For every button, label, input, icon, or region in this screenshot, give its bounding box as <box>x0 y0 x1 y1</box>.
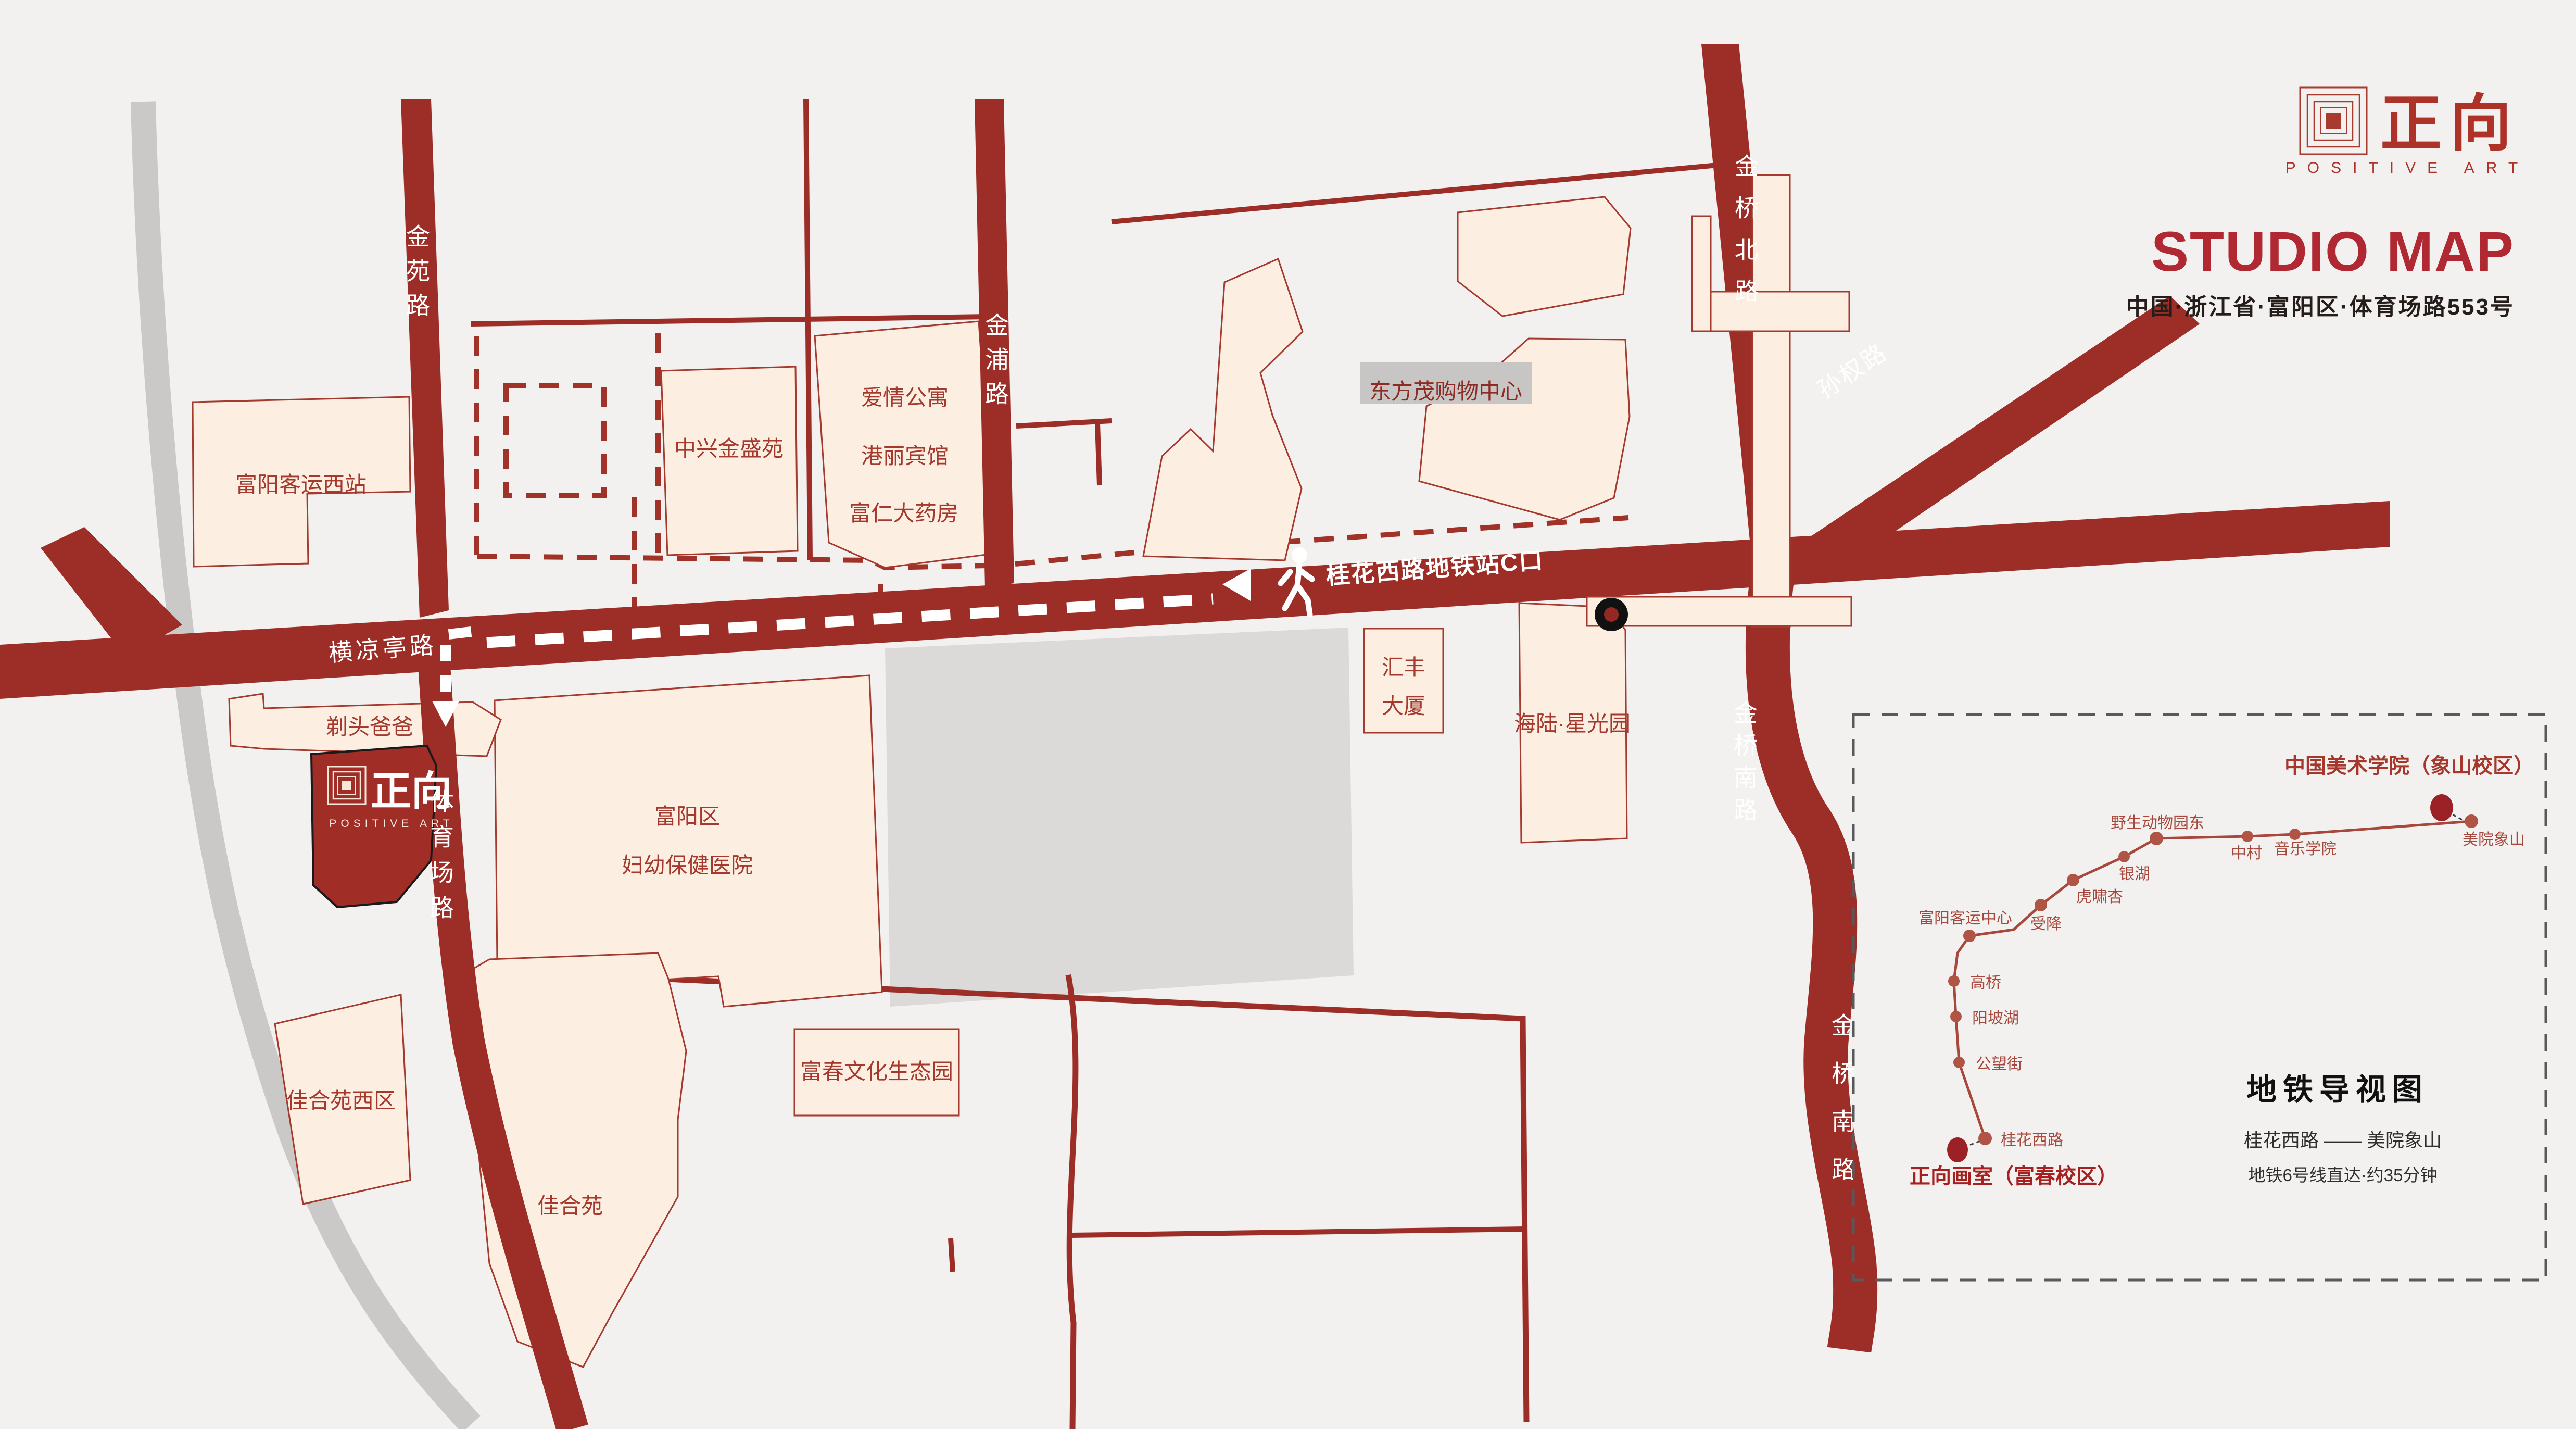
gray-block <box>885 628 1354 1007</box>
label-hailu: 海陆·星光园 <box>1514 711 1631 736</box>
label-road-sunquan: 孙权路 <box>1812 338 1892 404</box>
station-dot <box>1950 1011 1962 1022</box>
metro-origin: 正向画室（富春校区） <box>1910 1165 2118 1188</box>
station-label: 桂花西路 <box>2001 1132 2063 1149</box>
station-dot <box>1948 975 1960 987</box>
label-furen: 富仁大药房 <box>849 501 958 525</box>
metro-note: 地铁6号线直达·约35分钟 <box>2248 1165 2437 1185</box>
station-dot <box>2242 831 2253 842</box>
station-label: 高桥 <box>1970 974 2001 992</box>
label-road-jinpu: 金浦路 <box>982 312 1009 416</box>
station-dot <box>2465 814 2478 828</box>
station-dot <box>1963 930 1976 942</box>
station-dot <box>2150 832 2163 845</box>
label-road-jinqiao-south-upper: 金桥南路 <box>1731 700 1758 830</box>
station-dot <box>1978 1132 1992 1145</box>
destination-terminal-dot <box>2430 794 2453 821</box>
label-road-jinqiao-south: 金桥南路 <box>1828 1013 1855 1205</box>
label-fuyou-line2: 妇幼保健医院 <box>622 853 753 878</box>
building-zhongxing <box>661 367 798 555</box>
station-dot <box>1953 1057 1965 1068</box>
label-dongfangmao: 东方茂购物中心 <box>1369 379 1522 404</box>
station-label: 美院象山 <box>2463 831 2525 848</box>
studio-map-page: 正向 POSITIVE ART 富阳客运西站 中兴金盛苑 爱情公寓 港丽宾馆 富… <box>0 0 2576 1429</box>
station-label: 银湖 <box>2119 866 2150 883</box>
station-label: 虎啸杏 <box>2076 888 2123 906</box>
header: 正向 POSITIVE ART STUDIO MAP 中国·浙江省·富阳区·体育… <box>2126 87 2530 320</box>
label-gangli: 港丽宾馆 <box>861 444 949 468</box>
label-fuchun-park: 富春文化生态园 <box>800 1059 953 1084</box>
page-address: 中国·浙江省·富阳区·体育场路553号 <box>2126 294 2515 320</box>
label-jiaheyuan-west: 佳合苑西区 <box>286 1088 396 1113</box>
station-label: 阳坡湖 <box>1972 1010 2019 1027</box>
station-label: 野生动物园东 <box>2111 814 2204 832</box>
station-dot <box>2289 829 2301 840</box>
page-title: STUDIO MAP <box>2151 220 2515 283</box>
station-dot <box>2067 874 2079 886</box>
label-aiqing: 爱情公寓 <box>861 385 949 410</box>
building-dongfangmao-north <box>1458 197 1631 316</box>
label-fuyang-west: 富阳客运西站 <box>235 472 367 497</box>
station-label: 受降 <box>2030 916 2062 933</box>
label-jiaheyuan: 佳合苑 <box>537 1194 603 1218</box>
label-huifeng-line1: 汇丰 <box>1382 655 1425 680</box>
label-road-jinyuan: 金苑路 <box>403 224 430 327</box>
label-zhongxing: 中兴金盛苑 <box>674 436 784 461</box>
road-jinyuan <box>401 99 449 618</box>
label-fuyou-line1: 富阳区 <box>654 804 720 829</box>
station-dot <box>2118 851 2130 862</box>
building-dongfangmao-west <box>1143 259 1303 560</box>
metro-route: 桂花西路 —— 美院象山 <box>2244 1130 2442 1151</box>
label-road-tiyuchang: 体育场路 <box>427 789 454 931</box>
studio-logo-icon <box>328 767 365 804</box>
station-label: 音乐学院 <box>2274 841 2337 858</box>
route-dash-corner <box>449 632 471 634</box>
brand-name-en: POSITIVE ART <box>2285 159 2530 177</box>
label-titoubaba: 剃头爸爸 <box>326 714 413 739</box>
brand-name-cn: 正向 <box>2380 90 2520 158</box>
station-label: 中村 <box>2231 845 2262 862</box>
label-huifeng-line2: 大厦 <box>1382 694 1425 718</box>
label-road-jinqiao-north: 金桥北路 <box>1732 154 1759 320</box>
station-label: 富阳客运中心 <box>1918 910 2012 927</box>
metro-exit-marker <box>1595 598 1628 631</box>
brand-logo-icon <box>2300 87 2367 154</box>
metro-panel: 桂花西路 公望街 阳坡湖 高桥 富阳客运中心 受降 虎啸杏 银湖 野生动物园东 … <box>1853 714 2546 1280</box>
map-canvas: 正向 POSITIVE ART 富阳客运西站 中兴金盛苑 爱情公寓 港丽宾馆 富… <box>0 0 2576 1429</box>
station-dot <box>2035 899 2047 911</box>
road-jinqiao-south <box>1767 573 1855 1350</box>
metro-panel-title: 地铁导视图 <box>2246 1073 2429 1107</box>
origin-terminal-dot <box>1947 1137 1968 1162</box>
metro-destination: 中国美术学院（象山校区） <box>2284 755 2534 778</box>
station-label: 公望街 <box>1976 1056 2023 1073</box>
